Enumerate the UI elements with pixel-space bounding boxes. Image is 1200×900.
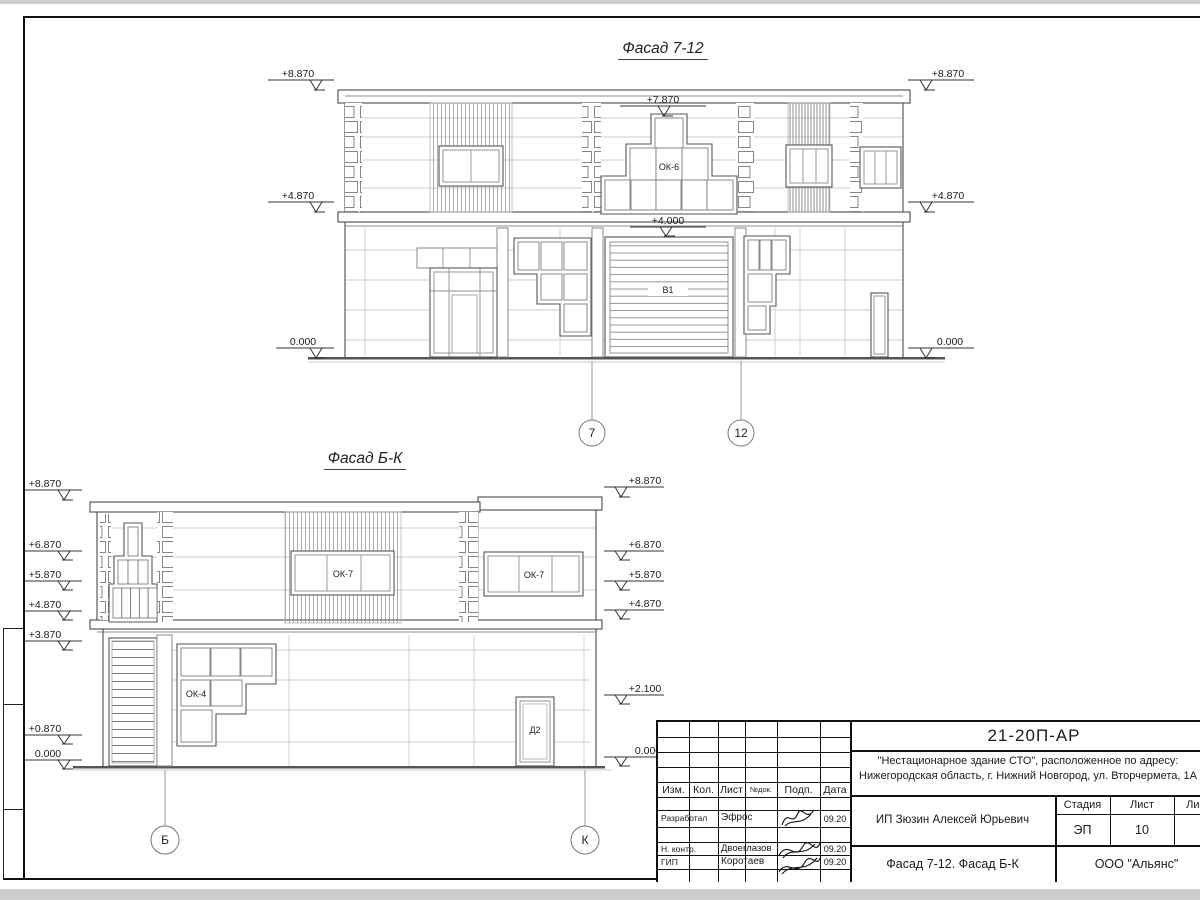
elevation-value: +4.870: [29, 599, 62, 611]
window-ok7-right: ОК-7: [484, 552, 583, 596]
sheets-total-header: Листов: [1174, 796, 1200, 814]
row-name: Эфрос: [721, 812, 753, 823]
signature-mark: [779, 843, 820, 858]
elevation-value: +8.870: [29, 478, 62, 490]
company-name: ООО "Альянс": [1055, 845, 1200, 882]
elevation-markers-right: +8.870 +6.870 +5.870 +4.870 +2.100 0.000: [604, 475, 664, 766]
elevation-value: +4.000: [652, 215, 685, 227]
col-header-list: Лист: [718, 782, 745, 797]
elevation-markers-left: +8.870 +4.870 0.000: [268, 68, 334, 358]
window-ok6: ОК-6: [601, 114, 737, 214]
elevation-value: +0.870: [29, 723, 62, 735]
window-3pane: [786, 145, 832, 187]
row-role: Н. контр.: [661, 844, 696, 854]
window-3pane: [860, 147, 901, 188]
axis-marker-b: Б: [151, 770, 179, 854]
elevation-value: 0.000: [35, 748, 61, 760]
parapet-coping: [90, 502, 480, 512]
elevation-markers-left: +8.870 +6.870 +5.870 +4.870 +3.870 +0.87…: [25, 478, 82, 769]
col-header-podp: Подп.: [777, 782, 820, 797]
elevation-value: +5.870: [629, 569, 662, 581]
louver-shutter: [109, 638, 157, 766]
row-name: Коротаев: [721, 856, 764, 867]
grid-line: [658, 797, 850, 798]
elevation-value: +3.870: [29, 629, 62, 641]
elevation-value: +6.870: [29, 539, 62, 551]
row-date: 09.20: [820, 810, 850, 827]
signature-mark: [782, 810, 814, 826]
window-2pane: [439, 146, 503, 186]
gate-v1: В1: [605, 237, 733, 357]
axis-label: К: [582, 833, 589, 847]
row-date: 09.20: [820, 842, 850, 855]
window-ok6-label: ОК-6: [659, 162, 679, 172]
door-d2-label: Д2: [529, 725, 540, 735]
parapet-coping: [338, 90, 910, 103]
entrance-door: [417, 248, 497, 357]
window-stepped: [744, 236, 790, 334]
doc-number: 21-20П-АР: [850, 723, 1200, 749]
grid-line: [658, 737, 850, 738]
window-ok7-label: ОК-7: [524, 570, 544, 580]
stage-value: ЭП: [1055, 814, 1110, 845]
elevation-value: +4.870: [932, 190, 965, 202]
grid-line: [718, 722, 719, 882]
elevation-value: +5.870: [29, 569, 62, 581]
title-block: Изм. Кол. Лист №док. Подп. Дата Разработ…: [656, 720, 1200, 882]
grid-line: [850, 750, 1200, 752]
sheet-number: 10: [1110, 814, 1174, 845]
axis-label: 7: [589, 426, 596, 440]
window-stepped-corner: [109, 523, 157, 622]
col-header-izm: Изм.: [658, 782, 689, 797]
elevation-value: 0.000: [937, 336, 963, 348]
signatures: [777, 800, 822, 880]
sheet-header: Лист: [1110, 796, 1174, 814]
row-role: Разработал: [661, 813, 707, 823]
narrow-door: [871, 293, 888, 357]
axis-marker-7: 7: [579, 361, 605, 446]
facade-7-12-drawing: ОК-6 +7.870: [268, 68, 974, 446]
door-d2: Д2: [516, 697, 554, 766]
stage-header: Стадия: [1055, 796, 1110, 814]
axis-marker-k: К: [571, 770, 599, 854]
col-header-data: Дата: [820, 782, 850, 797]
pilaster: [592, 228, 603, 357]
window-ok7-label: ОК-7: [333, 569, 353, 579]
axis-label: Б: [161, 833, 169, 847]
project-line-2: Нижегородская область, г. Нижний Новгоро…: [858, 769, 1198, 784]
sheet-title: Фасад 7-12. Фасад Б-К: [850, 845, 1055, 882]
window-stepped: [514, 238, 591, 336]
col-header-kol: Кол.: [689, 782, 718, 797]
elevation-value: +8.870: [282, 68, 315, 80]
gate-v1-label: В1: [662, 285, 673, 295]
facade-bk-drawing: ОК-7 ОК-7 ОК-4 Д2: [25, 475, 664, 854]
grid-line: [689, 722, 690, 882]
elevation-value: 0.000: [290, 336, 316, 348]
elevation-value: +4.870: [629, 598, 662, 610]
window-ok7-left: ОК-7: [291, 551, 394, 595]
elevation-value: +8.870: [629, 475, 662, 487]
elevation-value: +6.870: [629, 539, 662, 551]
col-header-ndok: №док.: [745, 782, 777, 797]
elevation-value: +4.870: [282, 190, 315, 202]
drawing-sheet: { "f712": { "title": "Фасад 7-12", "elev…: [0, 0, 1200, 900]
grid-line: [658, 752, 850, 753]
row-date: 09.20: [820, 855, 850, 869]
axis-marker-12: 12: [728, 361, 754, 446]
elevation-markers-right: +8.870 +4.870 0.000: [908, 68, 974, 358]
window-ok4: ОК-4: [177, 644, 276, 746]
row-role: ГИП: [661, 857, 678, 867]
signature-mark: [779, 858, 820, 874]
row-name: Двоеглазов: [721, 843, 772, 854]
grid-line: [658, 767, 850, 768]
pilaster: [157, 635, 172, 766]
client-name: ИП Зюзин Алексей Юрьевич: [850, 795, 1055, 845]
elevation-value: +7.870: [647, 94, 680, 106]
elevation-value: +8.870: [932, 68, 965, 80]
project-description: "Нестационарное здание СТО", расположенн…: [858, 754, 1198, 784]
pilaster: [497, 228, 508, 357]
elevation-value: +2.100: [629, 683, 662, 695]
parapet-coping: [478, 497, 602, 510]
axis-label: 12: [734, 426, 748, 440]
window-ok4-label: ОК-4: [186, 689, 206, 699]
project-line-1: "Нестационарное здание СТО", расположенн…: [858, 754, 1198, 769]
